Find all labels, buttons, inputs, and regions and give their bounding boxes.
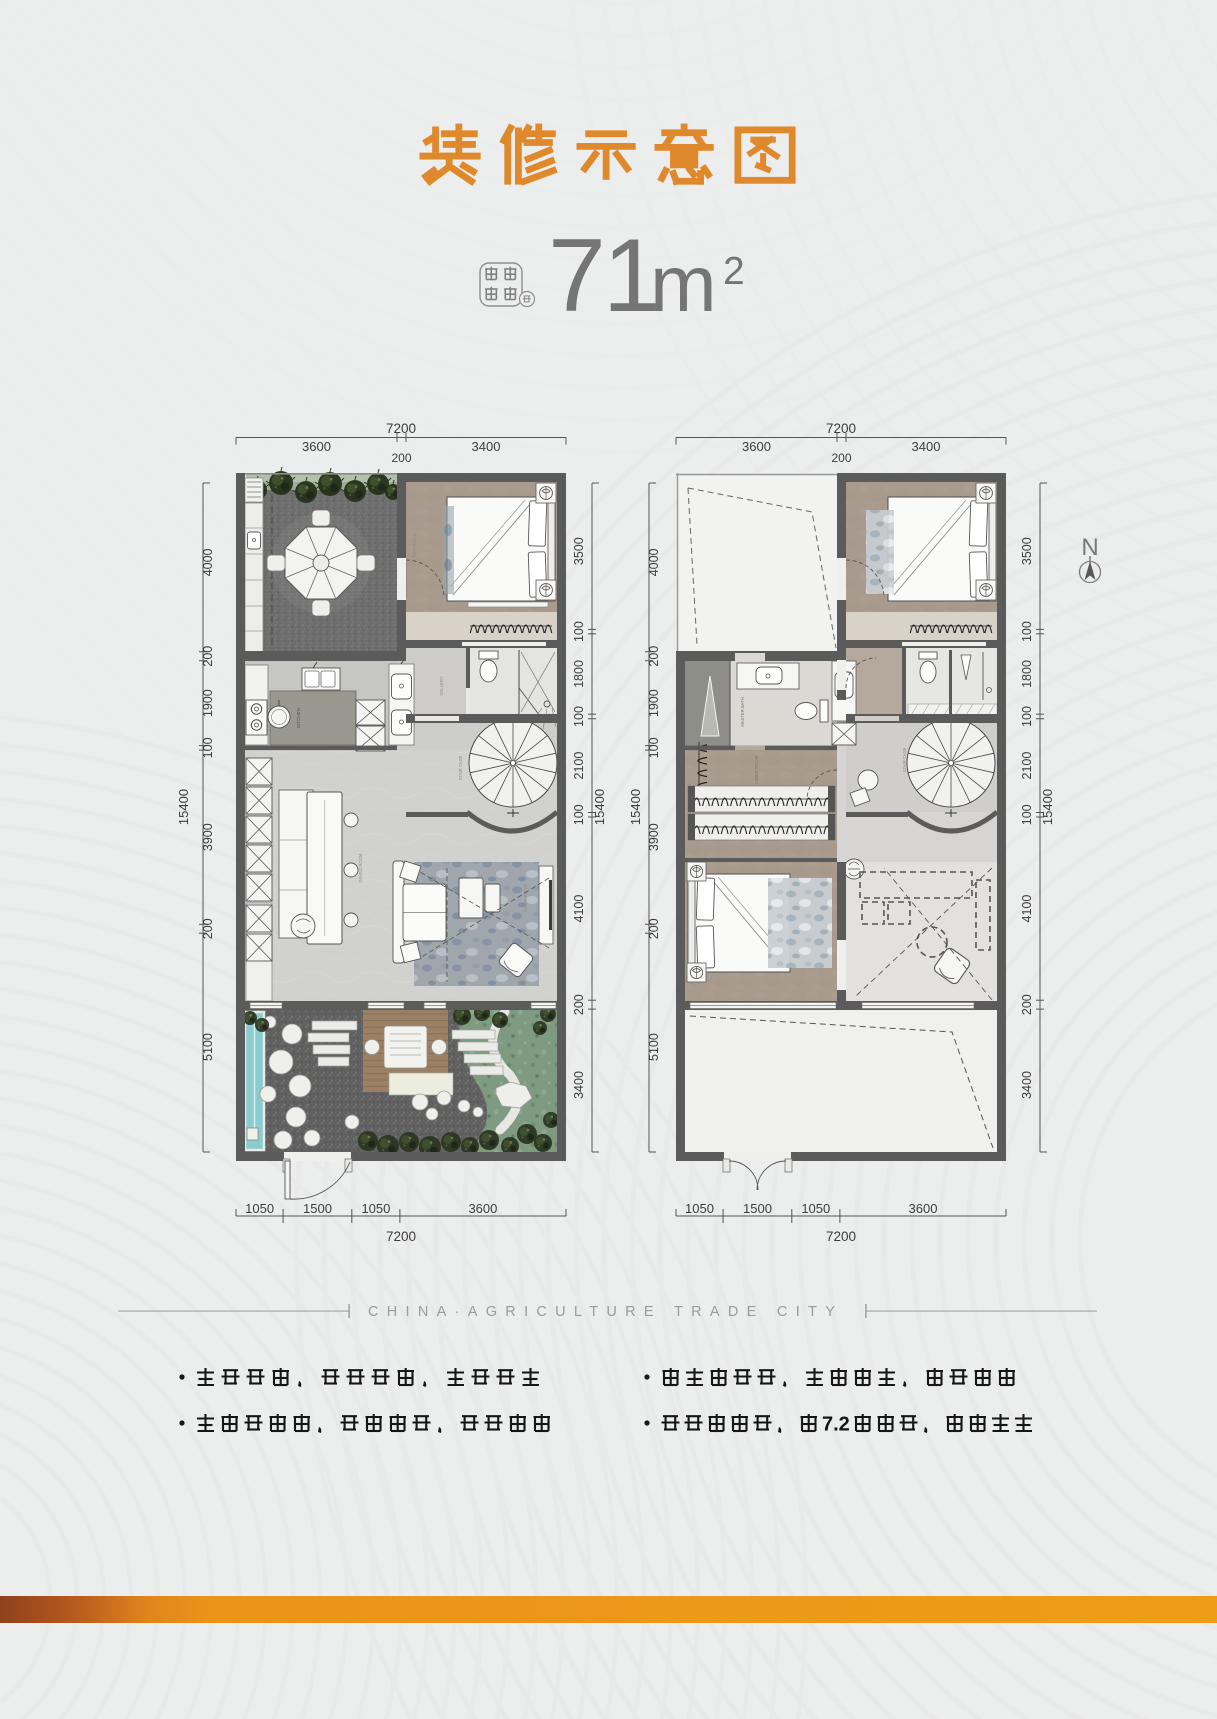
svg-text:1500: 1500 [743, 1201, 772, 1216]
svg-text:m: m [650, 239, 717, 328]
svg-text:7200: 7200 [826, 421, 856, 436]
svg-text:100: 100 [572, 621, 586, 642]
svg-text:7200: 7200 [386, 421, 416, 436]
svg-text:200: 200 [391, 451, 411, 465]
svg-text:GALLERY: GALLERY [439, 676, 444, 695]
svg-text:100: 100 [572, 706, 586, 727]
svg-text:15400: 15400 [628, 789, 643, 825]
svg-text:15400: 15400 [592, 789, 607, 825]
svg-text:200: 200 [647, 646, 661, 667]
svg-text:3400: 3400 [472, 439, 501, 454]
svg-text:200: 200 [831, 451, 851, 465]
svg-text:200: 200 [201, 918, 215, 939]
svg-text:1500: 1500 [303, 1201, 332, 1216]
svg-text:MASTER BATH: MASTER BATH [740, 697, 745, 726]
svg-text:4100: 4100 [1020, 895, 1034, 923]
svg-text:200: 200 [1020, 994, 1034, 1015]
svg-text:7.2: 7.2 [822, 1414, 850, 1436]
svg-text:3400: 3400 [912, 439, 941, 454]
svg-text:1050: 1050 [361, 1201, 390, 1216]
svg-text:3900: 3900 [201, 823, 215, 851]
svg-text:15400: 15400 [176, 789, 191, 825]
svg-text:1900: 1900 [647, 689, 661, 717]
svg-text:3600: 3600 [909, 1201, 938, 1216]
svg-text:1050: 1050 [245, 1201, 274, 1216]
svg-text:3400: 3400 [1020, 1071, 1034, 1099]
svg-text:4000: 4000 [647, 548, 661, 576]
svg-text:3400: 3400 [572, 1071, 586, 1099]
svg-text:LIVING ROOM: LIVING ROOM [523, 884, 528, 912]
svg-text:4000: 4000 [201, 548, 215, 576]
svg-text:3500: 3500 [1020, 537, 1034, 565]
svg-text:100: 100 [1020, 621, 1034, 642]
svg-text:100: 100 [1020, 804, 1034, 825]
svg-text:7200: 7200 [386, 1229, 416, 1244]
svg-text:3900: 3900 [647, 823, 661, 851]
svg-text:200: 200 [572, 994, 586, 1015]
svg-text:3600: 3600 [302, 439, 331, 454]
svg-text:100: 100 [201, 737, 215, 758]
svg-text:CHINA·AGRICULTURE TRADE CITY: CHINA·AGRICULTURE TRADE CITY [368, 1304, 843, 1320]
svg-text:LOBER ROOM: LOBER ROOM [754, 755, 759, 784]
svg-text:2: 2 [723, 250, 745, 293]
svg-text:1050: 1050 [801, 1201, 830, 1216]
svg-text:5100: 5100 [647, 1033, 661, 1061]
svg-text:100: 100 [1020, 706, 1034, 727]
svg-text:1050: 1050 [685, 1201, 714, 1216]
svg-text:3500: 3500 [572, 537, 586, 565]
svg-text:1800: 1800 [572, 660, 586, 688]
svg-text:200: 200 [647, 918, 661, 939]
svg-text:STAIR CASE: STAIR CASE [902, 748, 907, 773]
svg-text:4100: 4100 [572, 895, 586, 923]
svg-text:BED ROOM: BED ROOM [412, 533, 417, 558]
svg-text:DINING ROOM: DINING ROOM [358, 853, 363, 882]
svg-text:100: 100 [647, 737, 661, 758]
svg-text:3600: 3600 [468, 1201, 497, 1216]
svg-text:71: 71 [548, 218, 658, 334]
svg-text:1900: 1900 [201, 689, 215, 717]
svg-text:100: 100 [572, 804, 586, 825]
svg-text:1800: 1800 [1020, 660, 1034, 688]
svg-text:200: 200 [201, 646, 215, 667]
svg-text:5100: 5100 [201, 1033, 215, 1061]
svg-text:3600: 3600 [742, 439, 771, 454]
svg-text:STAIR CASE: STAIR CASE [458, 756, 463, 781]
svg-text:7200: 7200 [826, 1229, 856, 1244]
svg-text:15400: 15400 [1040, 789, 1055, 825]
svg-text:2100: 2100 [1020, 752, 1034, 780]
svg-text:KITCHEN: KITCHEN [296, 708, 301, 728]
svg-text:2100: 2100 [572, 752, 586, 780]
